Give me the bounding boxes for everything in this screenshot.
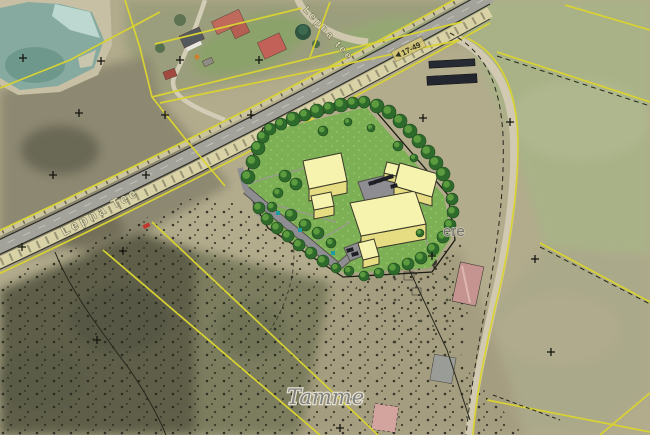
map-canvas[interactable]: Lepna Tee Lepna tee ere Tamme 17-49 [0,0,650,435]
place-name-label: Tamme [287,385,364,409]
aerial-map: Lepna Tee Lepna tee ere Tamme 17-49 [0,0,650,435]
pink-building [371,403,398,432]
building-east-annex [384,162,399,176]
parcel-name-partial-label: ere [443,223,465,240]
gray-building [430,354,456,383]
